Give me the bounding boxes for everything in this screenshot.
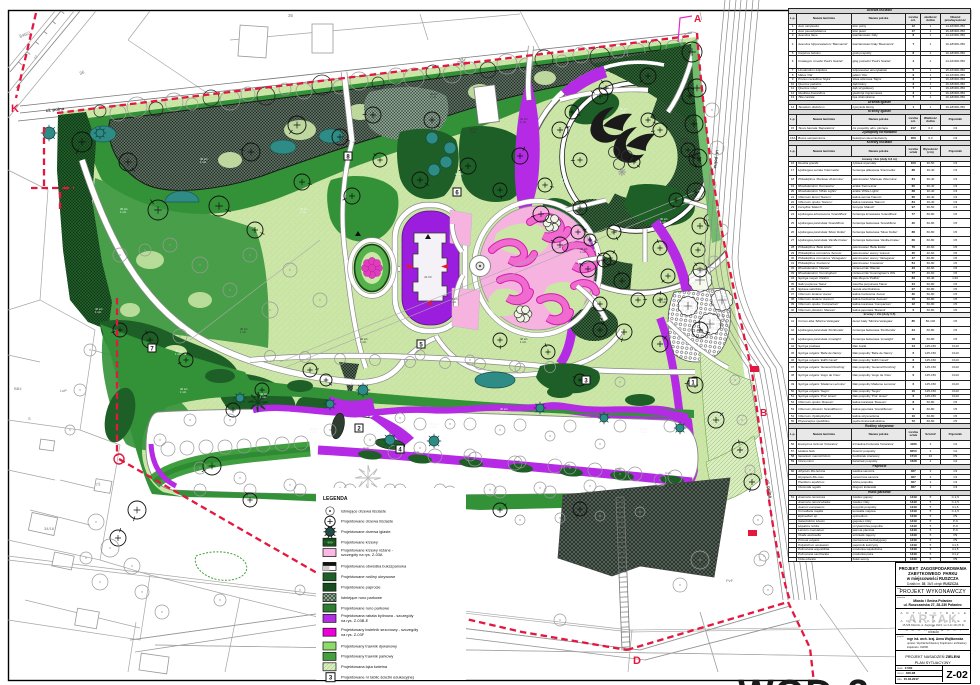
svg-text:1 szt.: 1 szt.	[640, 430, 647, 434]
svg-text:Istniejące drzewa liściaste: Istniejące drzewa liściaste	[341, 508, 386, 513]
svg-text:1 szt.: 1 szt.	[240, 330, 247, 334]
svg-text:1 szt.: 1 szt.	[560, 180, 567, 184]
svg-text:1 szt.: 1 szt.	[175, 352, 182, 356]
svg-text:1 szt.: 1 szt.	[500, 410, 507, 414]
svg-text:1 szt.: 1 szt.	[600, 318, 607, 322]
svg-text:4 szt.: 4 szt.	[363, 446, 370, 450]
svg-text:BB4: BB4	[14, 386, 22, 391]
svg-text:S: S	[28, 416, 31, 421]
svg-text:4 szt.: 4 szt.	[615, 467, 622, 471]
svg-text:Projektowany trawnik parkowy: Projektowany trawnik parkowy	[341, 654, 393, 659]
svg-text:1 szt.: 1 szt.	[520, 340, 527, 344]
svg-text:Projektowane drzewa iglaste: Projektowane drzewa iglaste	[341, 529, 391, 534]
svg-text:1 szt.: 1 szt.	[260, 395, 267, 399]
svg-text:A: A	[694, 14, 701, 25]
svg-text:K: K	[11, 103, 19, 115]
svg-text:Projektowany trawnik dywanowy: Projektowany trawnik dywanowy	[341, 643, 397, 648]
svg-text:34/18: 34/18	[44, 526, 55, 531]
svg-text:4 szt.: 4 szt.	[413, 450, 420, 454]
svg-text:1 szt.: 1 szt.	[455, 175, 462, 179]
svg-text:LwP: LwP	[60, 389, 67, 393]
svg-text:1 szt.: 1 szt.	[120, 210, 127, 214]
svg-text:na rys. Z-03F: na rys. Z-03F	[341, 632, 365, 637]
svg-text:999: 999	[327, 541, 332, 545]
svg-text:1 szt.: 1 szt.	[610, 70, 617, 74]
svg-text:Projektowane rośliny okrywowe: Projektowane rośliny okrywowe	[341, 574, 395, 579]
svg-text:1 szt.: 1 szt.	[300, 210, 307, 214]
svg-text:Projektowane nr tablic ścieżki: Projektowane nr tablic ścieżki edukacyjn…	[341, 675, 414, 680]
svg-text:na rys. Z-03B-E: na rys. Z-03B-E	[341, 618, 369, 623]
svg-text:1 szt.: 1 szt.	[450, 300, 457, 304]
svg-text:LEGENDA: LEGENDA	[323, 496, 348, 502]
svg-text:1 szt.: 1 szt.	[95, 310, 102, 314]
svg-text:1 szt.: 1 szt.	[660, 300, 667, 304]
svg-text:WOD-2: WOD-2	[738, 673, 870, 685]
svg-text:Projektowane krzewy: Projektowane krzewy	[341, 540, 378, 545]
svg-text:Projektowane runo parkowe: Projektowane runo parkowe	[341, 605, 389, 610]
svg-text:1 szt.: 1 szt.	[620, 110, 627, 114]
svg-text:1 szt.: 1 szt.	[200, 160, 207, 164]
svg-text:B: B	[760, 408, 767, 419]
svg-text:1 szt.: 1 szt.	[680, 140, 687, 144]
svg-text:Istniejące runo parkowe: Istniejące runo parkowe	[341, 595, 382, 600]
svg-text:Projektowana łąka kwietna: Projektowana łąka kwietna	[341, 664, 388, 669]
svg-text:Projektowane drzewa liściaste: Projektowane drzewa liściaste	[341, 519, 393, 524]
svg-text:1 szt.: 1 szt.	[470, 130, 477, 134]
svg-text:1 szt.: 1 szt.	[430, 425, 437, 429]
svg-text:PvF: PvF	[726, 578, 734, 583]
svg-text:1 szt.: 1 szt.	[430, 95, 437, 99]
svg-text:1 szt.: 1 szt.	[580, 250, 587, 254]
svg-text:1 szt.: 1 szt.	[360, 340, 367, 344]
svg-text:1 szt.: 1 szt.	[520, 120, 527, 124]
svg-text:35: 35	[288, 13, 294, 18]
svg-text:1 szt.: 1 szt.	[555, 458, 562, 462]
svg-text:Projektowana obwódka bukszpano: Projektowana obwódka bukszpanowa	[341, 564, 407, 569]
svg-text:44.60: 44.60	[424, 275, 432, 279]
svg-text:D: D	[633, 655, 641, 667]
svg-text:szczegóły na rys. Z-03A: szczegóły na rys. Z-03A	[341, 552, 383, 557]
svg-text:1 szt.: 1 szt.	[660, 220, 667, 224]
svg-text:1 szt.: 1 szt.	[310, 430, 317, 434]
svg-text:Projektowane paprocie: Projektowane paprocie	[341, 585, 381, 590]
svg-text:1 szt.: 1 szt.	[180, 390, 187, 394]
